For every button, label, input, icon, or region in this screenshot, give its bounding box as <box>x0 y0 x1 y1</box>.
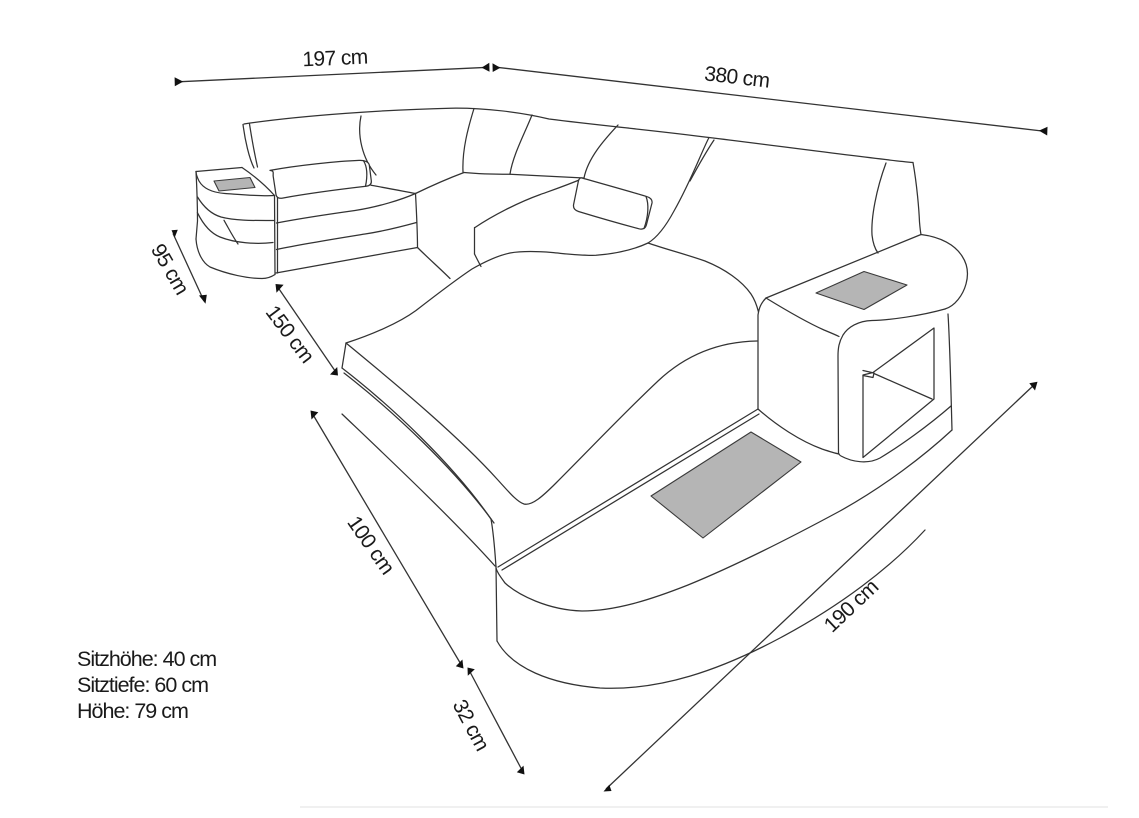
svg-text:Sitztiefe: 60 cm: Sitztiefe: 60 cm <box>77 673 208 697</box>
svg-text:Sitzhöhe: 40 cm: Sitzhöhe: 40 cm <box>77 647 216 671</box>
svg-text:Höhe: 79 cm: Höhe: 79 cm <box>77 699 188 723</box>
svg-text:197 cm: 197 cm <box>302 46 368 72</box>
